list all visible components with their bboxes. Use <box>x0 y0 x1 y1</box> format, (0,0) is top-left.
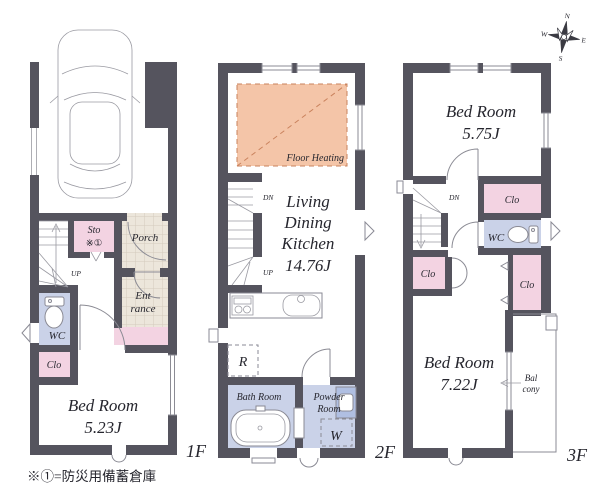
toilet-icon-1f <box>45 297 64 328</box>
floor-label-2f: 2F <box>375 442 396 462</box>
bedroom1-name-3f: Bed Room <box>446 102 516 121</box>
stairs-3f <box>413 188 441 248</box>
stairs-2f <box>228 189 253 285</box>
stairs-1f <box>39 221 68 287</box>
entrance-step <box>114 327 168 345</box>
footnote: ※①=防災用備蓄倉庫 <box>27 469 156 484</box>
bathtub-icon <box>231 406 290 446</box>
floor-label-3f: 3F <box>566 445 588 465</box>
closet-left-doors <box>452 258 467 288</box>
balcony-unit <box>546 316 557 330</box>
garage-opening <box>32 128 37 175</box>
balcony-label-2: cony <box>523 384 540 394</box>
closet-right-door-marks <box>501 262 508 304</box>
bedroom1-size-3f: 5.75J <box>462 124 501 143</box>
bathroom-label: Bath Room <box>237 392 282 403</box>
bedroom1-door-arc <box>447 149 478 180</box>
clo-right-label: Clo <box>520 280 534 291</box>
entrance-label-2: rance <box>130 303 155 315</box>
floor-heating-label: Floor Heating <box>286 153 345 164</box>
ldk-door-arc <box>302 349 330 377</box>
compass-icon: N E S W <box>537 9 590 66</box>
bottom-door-1f <box>112 455 126 462</box>
bedroom2-name-3f: Bed Room <box>424 353 494 372</box>
wc-door-arc-3f <box>452 222 478 248</box>
ldk-label-3: Kitchen <box>281 234 335 253</box>
wc-door-gap <box>30 323 39 343</box>
porch-label: Porch <box>131 232 159 244</box>
clo-left-label: Clo <box>421 269 435 280</box>
bedroom-size-1f: 5.23J <box>84 418 123 437</box>
ldk-label-1: Living <box>285 192 329 211</box>
wc-label-1f: WC <box>49 330 66 342</box>
floor-1f: UP Sto ※① Porch Ent rance WC Clo Bed Roo… <box>22 30 207 462</box>
balcony-label-1: Bal <box>525 373 538 383</box>
clo-top-label: Clo <box>505 195 519 206</box>
powder-label-2: Room <box>316 404 340 415</box>
compass-e: E <box>581 36 586 45</box>
floorplan-canvas: UP Sto ※① Porch Ent rance WC Clo Bed Roo… <box>0 0 600 492</box>
sto-note-label: ※① <box>86 238 103 249</box>
up-label-2f: UP <box>263 268 273 277</box>
floorplan-page: UP Sto ※① Porch Ent rance WC Clo Bed Roo… <box>0 0 600 492</box>
powder-label-1: Powder <box>312 392 344 403</box>
washer-label: W <box>330 429 343 444</box>
ldk-size-label: 14.76J <box>285 256 332 275</box>
toilet-icon-3f <box>508 226 538 243</box>
floor-label-1f: 1F <box>186 441 207 461</box>
wc-label-3f: WC <box>488 232 505 244</box>
compass-s: S <box>558 54 563 63</box>
kitchen-counter <box>230 293 322 318</box>
car-icon <box>50 30 140 198</box>
floor-2f: DN UP R <box>209 63 396 467</box>
up-label-1f: UP <box>71 269 81 278</box>
clo-label-1f: Clo <box>47 360 61 371</box>
wc-door-leaf <box>22 324 30 342</box>
bedroom-name-1f: Bed Room <box>68 396 138 415</box>
entrance-label-1: Ent <box>134 290 151 302</box>
windows-1f <box>168 355 177 415</box>
fridge-label: R <box>238 355 248 370</box>
sto-label: Sto <box>88 225 101 236</box>
floor-3f: DN Bed Room 5.75J Clo WC Clo Clo Bed Roo… <box>397 63 588 465</box>
bedroom2-size-3f: 7.22J <box>440 375 479 394</box>
dn-label-3f: DN <box>448 193 460 202</box>
ldk-label-2: Dining <box>283 213 331 232</box>
compass-w: W <box>540 30 548 39</box>
dn-label-2f: DN <box>262 193 274 202</box>
compass-n: N <box>564 12 570 21</box>
sto-door <box>91 252 101 261</box>
